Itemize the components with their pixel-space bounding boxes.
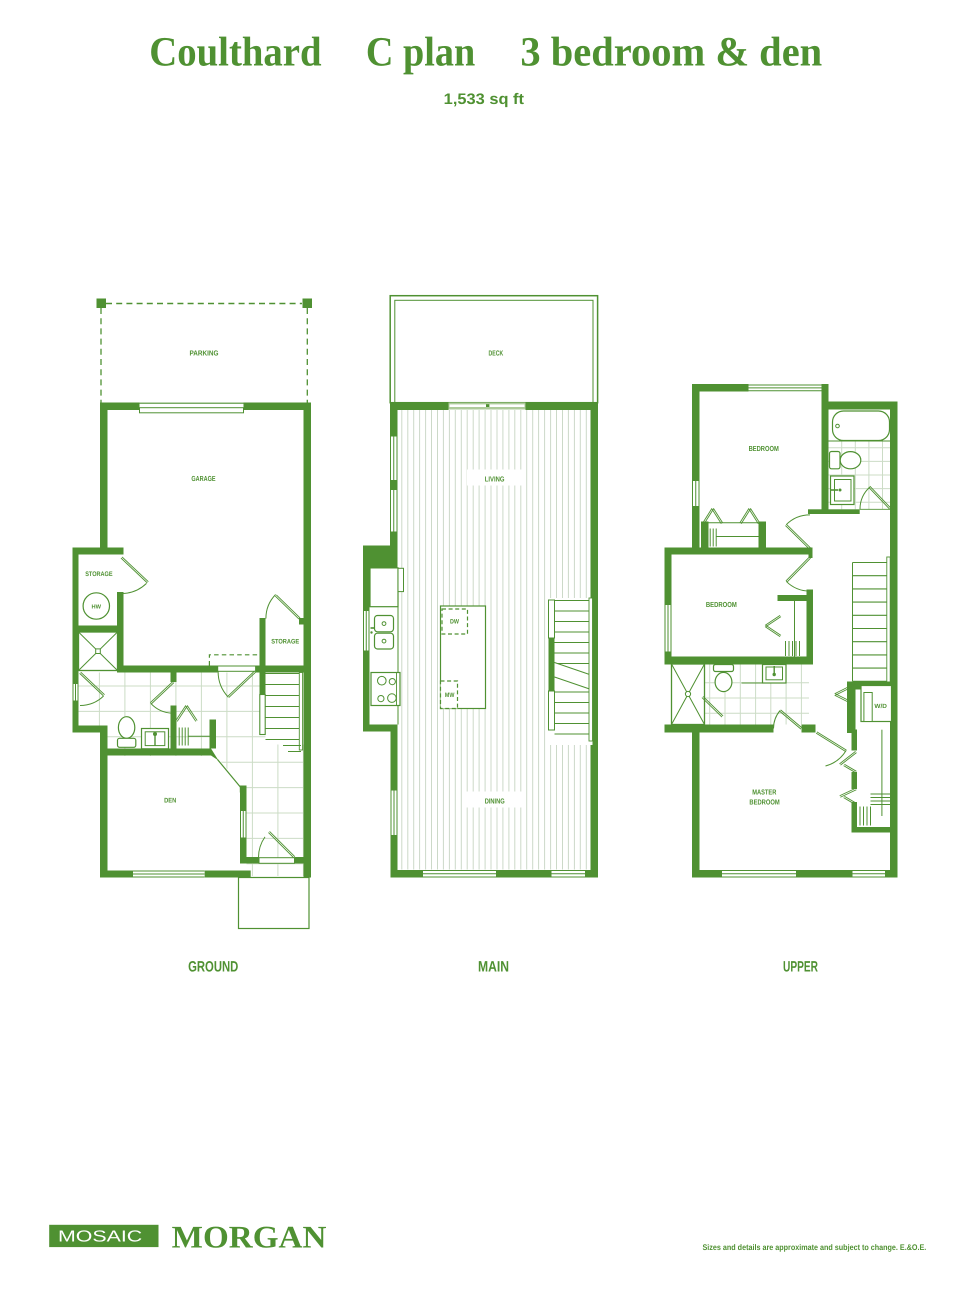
svg-text:STORAGE: STORAGE [271, 639, 300, 646]
svg-text:MAIN: MAIN [478, 958, 509, 975]
svg-text:STORAGE: STORAGE [85, 571, 113, 578]
svg-text:HW: HW [92, 605, 102, 611]
svg-text:MW: MW [445, 692, 455, 699]
svg-text:W/D: W/D [874, 703, 887, 710]
svg-text:LIVING: LIVING [485, 475, 505, 484]
svg-text:MOSAIC: MOSAIC [58, 1228, 142, 1245]
svg-text:C plan: C plan [366, 30, 475, 76]
svg-text:DINING: DINING [485, 797, 505, 806]
svg-text:Coulthard: Coulthard [149, 30, 321, 76]
svg-text:1,533 sq ft: 1,533 sq ft [444, 91, 524, 108]
svg-text:BEDROOM: BEDROOM [749, 797, 779, 806]
svg-text:MASTER: MASTER [752, 788, 777, 797]
svg-text:UPPER: UPPER [783, 958, 818, 975]
svg-text:DW: DW [450, 618, 459, 625]
svg-text:3 bedroom & den: 3 bedroom & den [520, 30, 822, 76]
svg-text:Sizes and details are approxim: Sizes and details are approximate and su… [703, 1243, 927, 1252]
svg-text:BEDROOM: BEDROOM [749, 444, 779, 453]
svg-text:DEN: DEN [164, 798, 176, 805]
svg-text:MORGAN: MORGAN [172, 1220, 327, 1255]
svg-text:PARKING: PARKING [190, 349, 219, 358]
svg-text:GROUND: GROUND [188, 958, 238, 975]
svg-text:BEDROOM: BEDROOM [706, 600, 737, 609]
svg-text:DECK: DECK [489, 349, 504, 358]
svg-text:GARAGE: GARAGE [191, 474, 215, 483]
